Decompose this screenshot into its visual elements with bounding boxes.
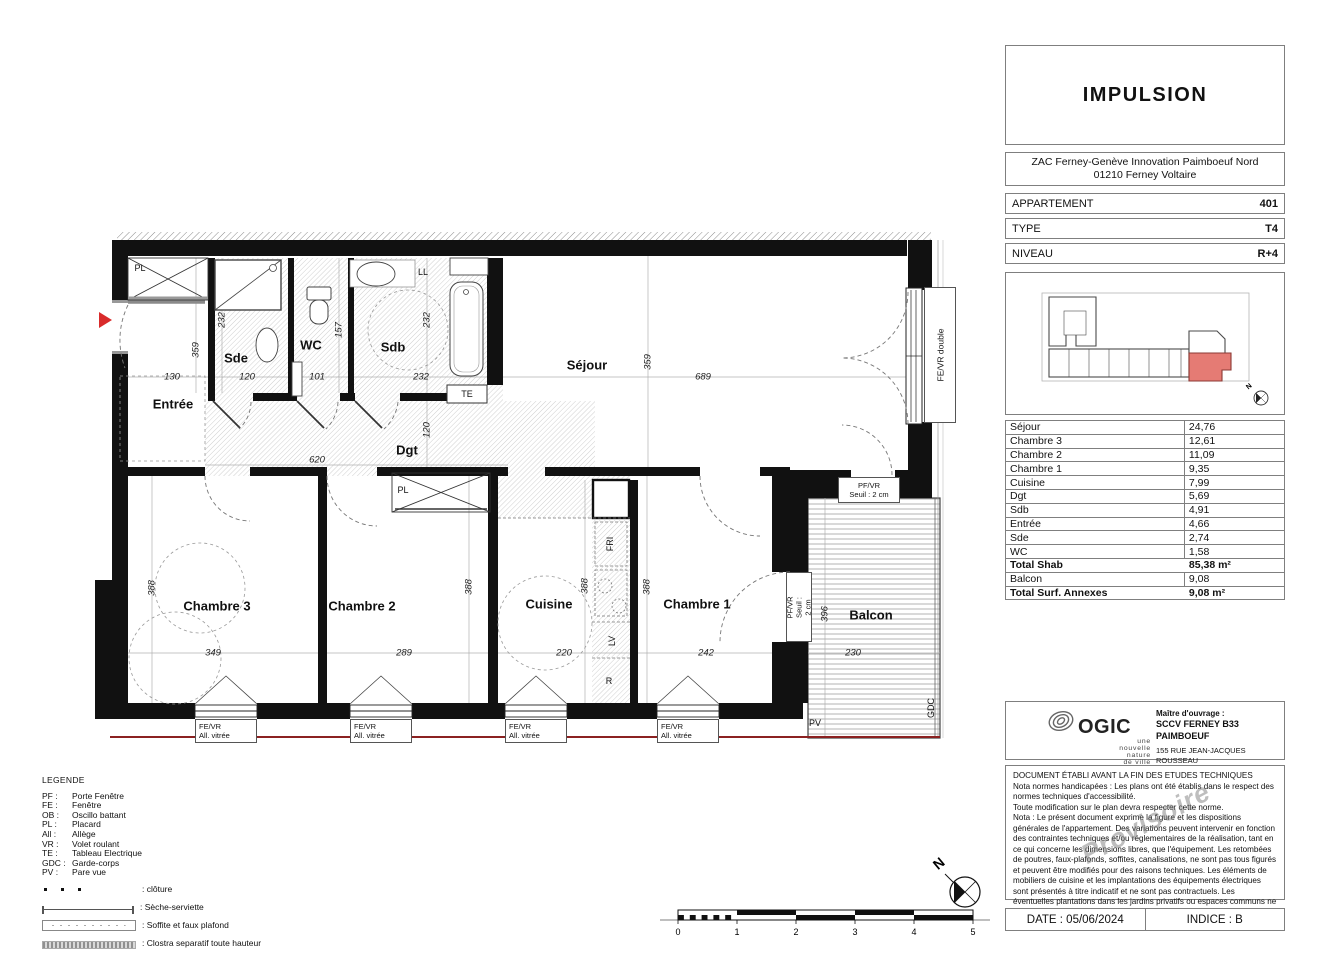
- dimension-label: 242: [698, 648, 714, 659]
- notes-box: DOCUMENT ÉTABLI AVANT LA FIN DES ETUDES …: [1005, 765, 1285, 900]
- area-table-row: Sdb4,91: [1005, 503, 1285, 518]
- dimension-label: 289: [396, 648, 412, 659]
- fe-vr-double-window: [906, 288, 922, 424]
- floor-plan-sheet: EntréeSdeWCSdbSéjourDgtChambre 3Chambre …: [0, 0, 1328, 974]
- dimension-label: 689: [695, 372, 711, 383]
- title-block: IMPULSION ZAC Ferney-Genève Innovation P…: [1005, 0, 1285, 974]
- ogic-tagline: unenouvellenaturede ville: [1046, 738, 1151, 766]
- legend-symbol-row: : Clostra separatif toute hauteur: [42, 938, 272, 950]
- area-table-row: Total Shab85,38 m²: [1005, 558, 1285, 573]
- dimension-label: 130: [164, 372, 180, 383]
- level-label: NIVEAU: [1012, 248, 1053, 260]
- dimension-label: 220: [556, 648, 572, 659]
- dimension-label: 396: [820, 606, 831, 622]
- scale-number: 5: [970, 927, 975, 937]
- room-label: WC: [300, 338, 322, 353]
- area-table-row: Chambre 211,09: [1005, 448, 1285, 463]
- type-value: T4: [1265, 223, 1278, 235]
- notes-p2: Toute modification sur le plan devra res…: [1013, 803, 1277, 814]
- apartment-label: APPARTEMENT: [1012, 198, 1094, 210]
- balcony-door-label-box: PF/VR Seuil : 2 cm: [838, 477, 900, 503]
- owner-address1: 155 RUE JEAN-JACQUES ROUSSEAU: [1156, 746, 1284, 766]
- legend-symbol-row: : clôture: [42, 884, 272, 896]
- dimension-label: 349: [205, 648, 221, 659]
- area-table-row: Balcon9,08: [1005, 572, 1285, 587]
- dimension-label: 388: [580, 578, 591, 594]
- area-table-row: Entrée4,66: [1005, 517, 1285, 532]
- plan-annotation: FRI: [605, 537, 615, 552]
- area-table-row: WC1,58: [1005, 544, 1285, 559]
- balcony-door-label-box: PF/VR Seuil : 2 cm: [786, 572, 812, 642]
- key-plan-box: N: [1005, 272, 1285, 415]
- dimension-label: 230: [845, 648, 861, 659]
- window-label-box: FE/VRAll. vitrée: [505, 719, 567, 743]
- room-label: Cuisine: [526, 597, 573, 612]
- level-value: R+4: [1258, 248, 1279, 260]
- dimension-label: 232: [422, 312, 433, 328]
- area-table-row: Séjour24,76: [1005, 420, 1285, 435]
- dimension-label: 388: [642, 579, 653, 595]
- room-label: Chambre 2: [328, 599, 395, 614]
- dimension-label: 620: [309, 455, 325, 466]
- scale-number: 1: [734, 927, 739, 937]
- scale-number: 2: [793, 927, 798, 937]
- dimension-label: 120: [422, 422, 433, 438]
- entrance-arrow-icon: [99, 312, 112, 328]
- room-label: Sdb: [381, 340, 406, 355]
- room-label: Chambre 3: [183, 599, 250, 614]
- area-table-row: Total Surf. Annexes9,08 m²: [1005, 586, 1285, 601]
- ogic-logo: OGIC unenouvellenaturede ville: [1046, 708, 1151, 739]
- dimension-label: 388: [147, 580, 158, 596]
- notes-title: DOCUMENT ÉTABLI AVANT LA FIN DES ETUDES …: [1013, 771, 1277, 782]
- project-title: IMPULSION: [1083, 84, 1208, 107]
- apartment-value: 401: [1260, 198, 1278, 210]
- room-label: Balcon: [849, 608, 892, 623]
- project-address-box: ZAC Ferney-Genève Innovation Paimboeuf N…: [1005, 152, 1285, 186]
- room-label: Sde: [224, 351, 248, 366]
- ogic-wordmark: OGIC: [1078, 716, 1131, 739]
- floor-plan: EntréeSdeWCSdbSéjourDgtChambre 3Chambre …: [95, 228, 955, 748]
- developer-box: OGIC unenouvellenaturede ville Maître d'…: [1005, 701, 1285, 760]
- scale-tick-labels: 012345: [675, 927, 975, 937]
- room-label: Chambre 1: [663, 597, 730, 612]
- legend-symbol-row: : Soffite et faux plafond: [42, 920, 272, 932]
- plan-annotation: R: [606, 676, 613, 686]
- highlighted-unit: [1189, 353, 1231, 381]
- plan-annotation: PL: [134, 263, 145, 273]
- room-label: Séjour: [567, 358, 607, 373]
- fe-vr-double-label: FE/VR double: [924, 287, 956, 423]
- room-label: Dgt: [396, 443, 418, 458]
- address-line2: 01210 Ferney Voltaire: [1094, 169, 1197, 182]
- dimension-label: 232: [217, 312, 228, 328]
- area-table-row: Cuisine7,99: [1005, 475, 1285, 490]
- plan-annotation: TE: [461, 389, 473, 399]
- area-table: Séjour24,76Chambre 312,61Chambre 211,09C…: [1005, 420, 1285, 600]
- scale-number: 3: [852, 927, 857, 937]
- legend-abbrev-row: PV :Pare vue: [42, 868, 272, 878]
- dimension-label: 359: [643, 354, 654, 370]
- legend-symbol-row: : Sèche-serviette: [42, 902, 272, 914]
- ogic-swirl-icon: [1046, 708, 1076, 736]
- window-label-box: FE/VRAll. vitrée: [657, 719, 719, 743]
- key-plan: N: [1006, 273, 1284, 414]
- window-label-box: FE/VRAll. vitrée: [195, 719, 257, 743]
- scale-number: 0: [675, 927, 680, 937]
- legend: LEGENDE PF :Porte FenêtreFE :FenêtreOB :…: [42, 776, 272, 950]
- dimension-label: 157: [334, 322, 345, 338]
- date-indice-bar: DATE : 05/06/2024 INDICE : B: [1005, 908, 1285, 931]
- dimension-label: 359: [191, 342, 202, 358]
- plan-annotation: LV: [607, 636, 617, 646]
- floor-plan-drawing: [95, 228, 955, 748]
- plan-annotation: PL: [397, 485, 408, 495]
- plan-annotation: LL: [418, 267, 428, 277]
- notes-p1: Nota normes handicapées : Les plans ont …: [1013, 782, 1277, 803]
- legend-clostra-icon: [42, 941, 136, 949]
- area-table-row: Chambre 19,35: [1005, 461, 1285, 476]
- legend-seche-icon: [42, 909, 134, 914]
- type-row: TYPE T4: [1005, 218, 1285, 239]
- window-label-box: FE/VRAll. vitrée: [350, 719, 412, 743]
- address-line1: ZAC Ferney-Genève Innovation Paimboeuf N…: [1031, 156, 1258, 169]
- owner-name: SCCV FERNEY B33 PAIMBOEUF: [1156, 719, 1284, 742]
- room-label: Entrée: [153, 397, 193, 412]
- date-cell: DATE : 05/06/2024: [1006, 909, 1146, 930]
- legend-cloture-icon: [42, 884, 136, 896]
- plan-annotation: GDC: [926, 698, 936, 718]
- project-title-box: IMPULSION: [1005, 45, 1285, 145]
- type-label: TYPE: [1012, 223, 1041, 235]
- plan-annotation: PV: [809, 718, 821, 728]
- apartment-row: APPARTEMENT 401: [1005, 193, 1285, 214]
- indice-cell: INDICE : B: [1146, 909, 1285, 930]
- legend-soffite-icon: [42, 920, 136, 931]
- key-plan-north-letter: N: [1245, 382, 1253, 391]
- owner-label: Maître d'ouvrage :: [1156, 709, 1284, 719]
- scale-number: 4: [911, 927, 916, 937]
- area-table-row: Sde2,74: [1005, 530, 1285, 545]
- legend-title: LEGENDE: [42, 776, 272, 786]
- area-table-row: Chambre 312,61: [1005, 434, 1285, 449]
- dimension-label: 388: [464, 579, 475, 595]
- dimension-label: 232: [413, 372, 429, 383]
- level-row: NIVEAU R+4: [1005, 243, 1285, 264]
- north-letter: N: [930, 854, 948, 873]
- dimension-label: 120: [239, 372, 255, 383]
- north-compass: N: [925, 852, 1000, 924]
- area-table-row: Dgt5,69: [1005, 489, 1285, 504]
- dimension-label: 101: [309, 372, 325, 383]
